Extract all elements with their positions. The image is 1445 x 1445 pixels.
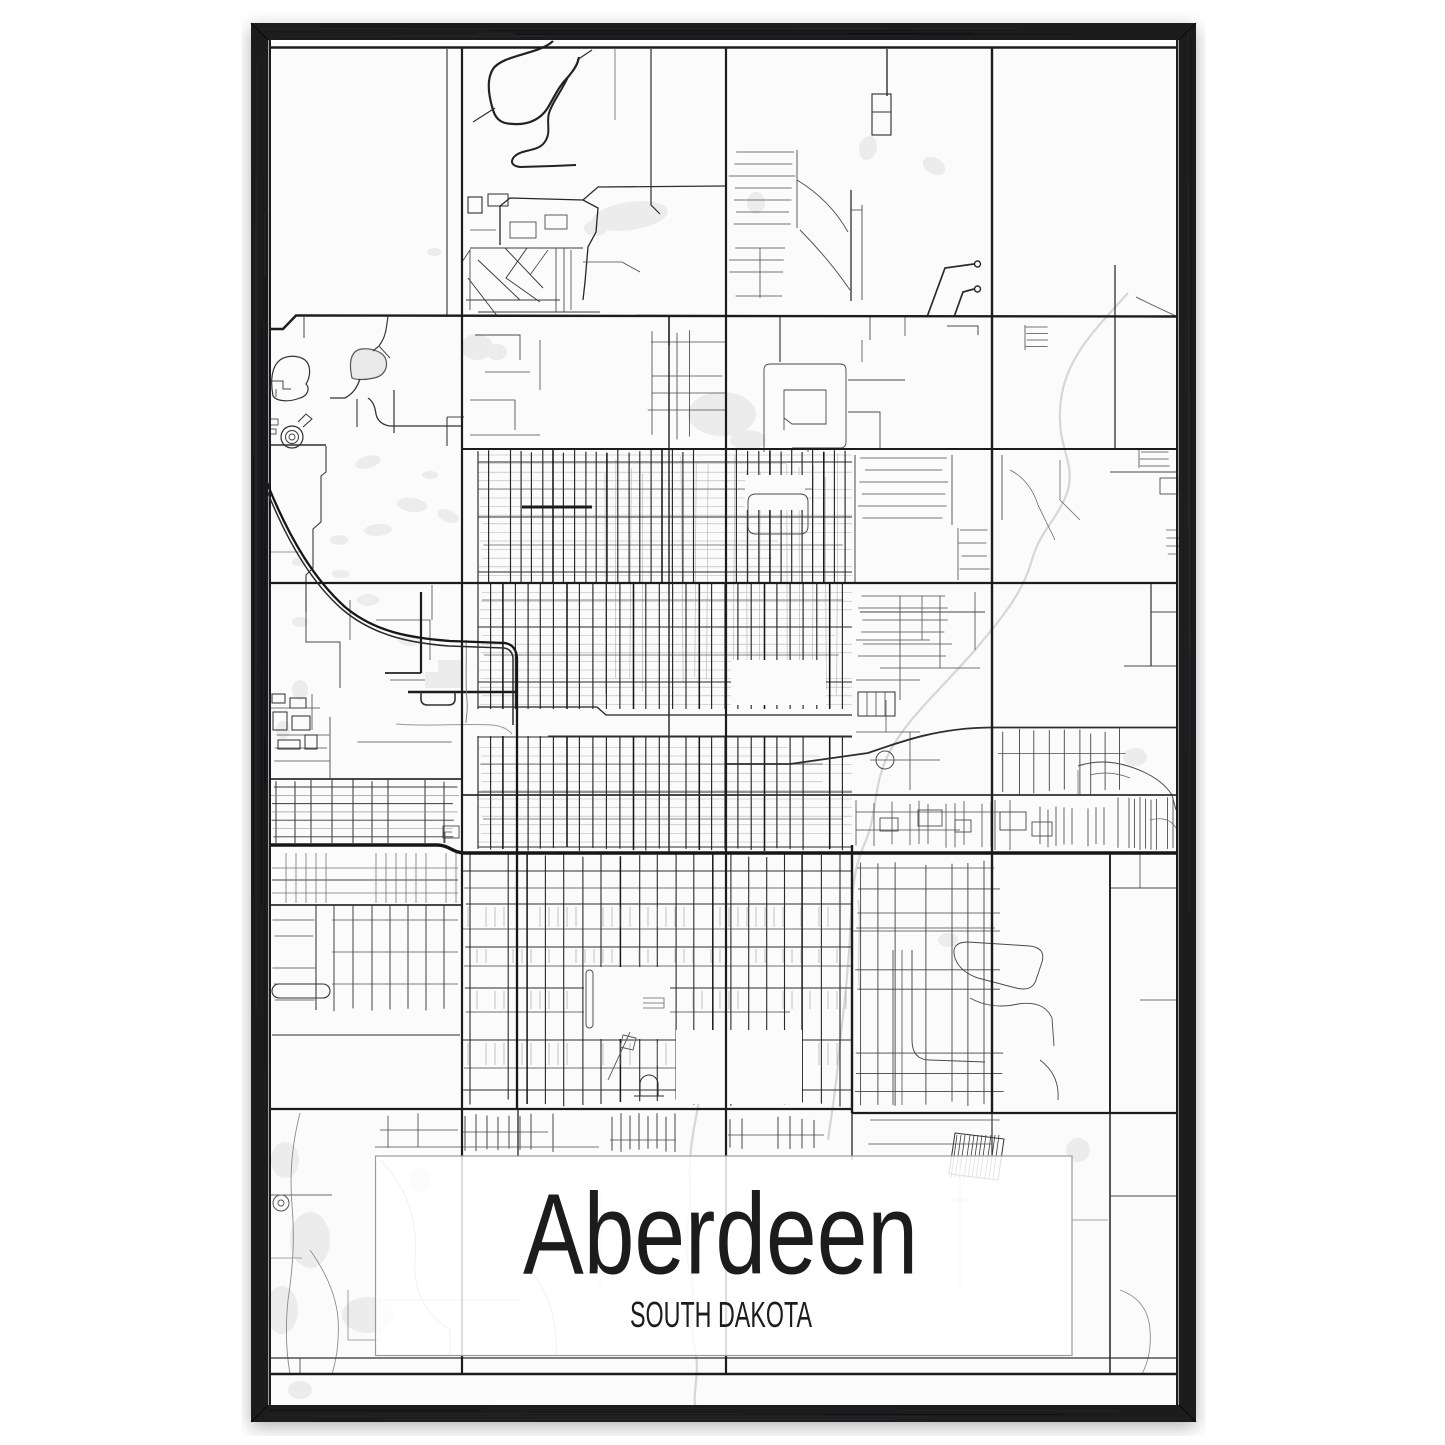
svg-text:SOUTH DAKOTA: SOUTH DAKOTA [630, 1294, 812, 1335]
svg-text:Aberdeen: Aberdeen [523, 1170, 918, 1299]
